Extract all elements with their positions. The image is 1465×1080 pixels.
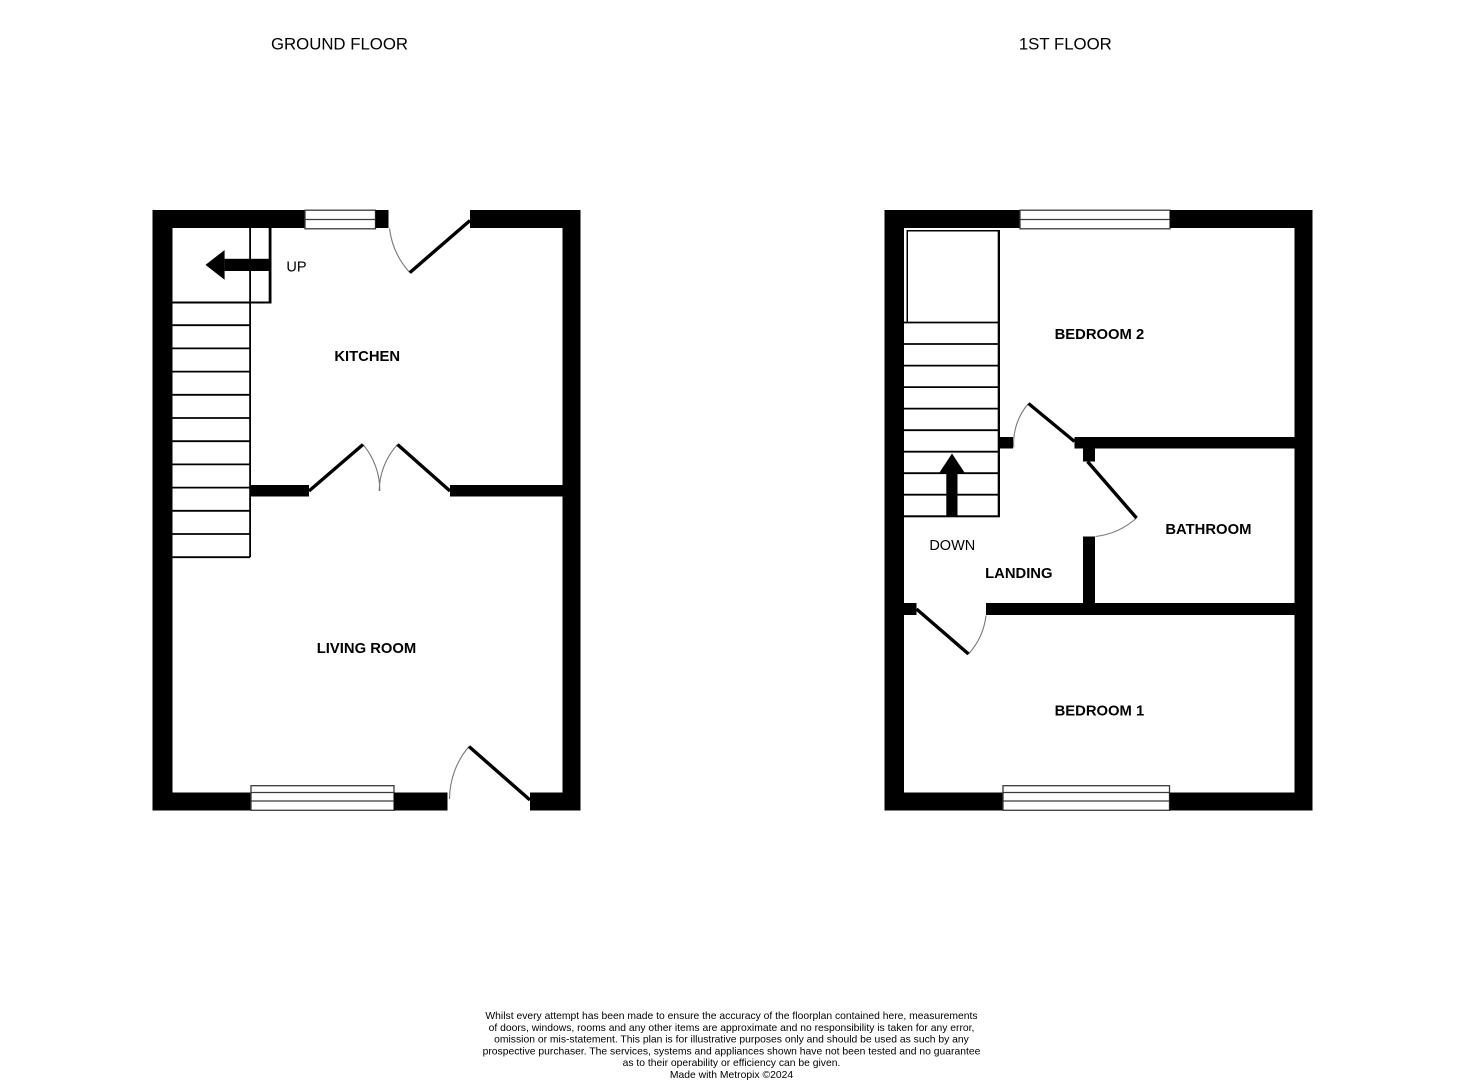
svg-text:omission or mis-statement. Thi: omission or mis-statement. This plan is … [494,1035,970,1046]
svg-text:UP: UP [286,259,306,275]
svg-text:BEDROOM 1: BEDROOM 1 [1055,703,1145,719]
svg-text:DOWN: DOWN [929,538,975,554]
svg-text:BEDROOM 2: BEDROOM 2 [1055,327,1145,343]
svg-text:prospective purchaser. The ser: prospective purchaser. The services, sys… [483,1046,981,1057]
svg-text:Made with Metropix ©2024: Made with Metropix ©2024 [670,1070,793,1080]
svg-text:of doors, windows, rooms and a: of doors, windows, rooms and any other i… [489,1023,975,1034]
svg-text:LIVING ROOM: LIVING ROOM [317,641,416,657]
svg-text:GROUND FLOOR: GROUND FLOOR [271,34,408,53]
svg-text:LANDING: LANDING [985,566,1052,582]
svg-text:BATHROOM: BATHROOM [1165,522,1251,538]
svg-text:Whilst every attempt has been: Whilst every attempt has been made to en… [485,1011,977,1022]
svg-text:KITCHEN: KITCHEN [334,349,400,365]
svg-text:1ST FLOOR: 1ST FLOOR [1019,34,1112,53]
svg-text:as to their operability or eff: as to their operability or efficiency ca… [623,1058,841,1069]
